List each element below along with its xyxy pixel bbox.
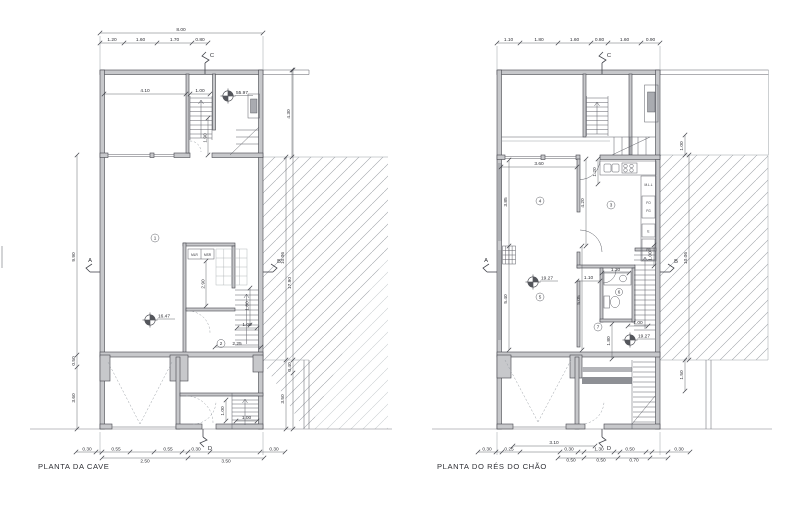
section-letter-d: D [607, 446, 611, 452]
dim-label: 1.30 [611, 267, 621, 273]
ground-floor-plan: 4 3 5 6 7 1.10 1.80 1.60 0.80 1.60 0.90 … [432, 37, 772, 471]
plan-title-cave: PLANTA DA CAVE [38, 462, 109, 471]
dim-label: 3.60 [534, 161, 544, 167]
dim-label: 1.20 [107, 37, 117, 43]
dim-label: 10.06 [683, 252, 689, 264]
level-value: 16.47 [158, 314, 170, 320]
room-number: 3 [610, 203, 613, 208]
cave-plan: 1 2 8.00 1.20 1.60 1.70 0.80 4.10 1.00 5… [30, 27, 392, 471]
section-letter-c: C [607, 53, 611, 59]
dim-label: 3.60 [71, 393, 77, 403]
dim-label: 0.30 [269, 447, 279, 453]
dim-label: 1.00 [633, 320, 643, 326]
chao-room-5: 5 [536, 293, 544, 301]
dim-label: 1.00 [220, 406, 226, 416]
dim-label: 3.50 [280, 394, 286, 404]
room-number: 2 [220, 341, 223, 346]
plan-title-ground-floor: PLANTA DO RÉS DO CHÃO [437, 462, 547, 471]
dim-label: 0.50 [596, 458, 606, 464]
dim-label: 0.50 [625, 447, 635, 453]
cave-level-marker-main [143, 313, 158, 328]
laundry-label: MSR [204, 253, 212, 257]
dim-label: 1.90 [203, 133, 209, 143]
cave-section-markers [86, 52, 277, 447]
dim-label: 0.80 [595, 37, 605, 43]
dim-label: 0.30 [191, 447, 201, 453]
dim-label: 1.60 [570, 37, 580, 43]
cave-level-marker-upper [221, 89, 236, 104]
room-number: 1 [154, 236, 157, 241]
laundry-label: MLR [191, 253, 198, 257]
section-letter-a: A [484, 258, 488, 264]
dim-label: 17.90 [287, 277, 293, 289]
dim-label: 5.05 [576, 295, 582, 305]
dim-label: 1.00 [679, 141, 685, 151]
dim-label: 1.70 [170, 37, 180, 43]
cave-flue [248, 94, 260, 118]
dim-label: 1.80 [245, 301, 251, 311]
section-letter-b: B [674, 259, 678, 265]
level-value: 19.27 [541, 276, 553, 282]
cave-walls [100, 70, 263, 429]
cave-terrain-hatch [263, 70, 388, 429]
dim-label: 0.55 [163, 447, 173, 453]
cave-room-1: 1 [151, 234, 159, 242]
dim-label: 9.90 [71, 252, 77, 262]
dim-label: 0.25 [504, 447, 514, 453]
floor-plan-sheet: 1 2 8.00 1.20 1.60 1.70 0.80 4.10 1.00 5… [0, 0, 800, 505]
dim-label: 4.30 [286, 109, 292, 119]
dim-label: 3.10 [549, 440, 559, 446]
dim-label: 1.20 [592, 167, 598, 177]
chao-mid-stair [634, 255, 656, 330]
kitchen-label-fg: FG [646, 209, 651, 213]
chao-garage [505, 360, 571, 422]
chao-level-marker-main [526, 275, 541, 290]
dim-label: 1.00 [648, 251, 654, 261]
kitchen-label-e: E [647, 230, 649, 234]
dim-label: 2.50 [140, 459, 150, 465]
chao-room-4: 4 [536, 197, 544, 205]
cave-mid-stair [235, 290, 259, 345]
room-number: 4 [539, 199, 542, 204]
chao-level-marker-entry [623, 333, 638, 348]
floor-plans-drawing: 1 2 8.00 1.20 1.60 1.70 0.80 4.10 1.00 5… [0, 0, 800, 505]
room-number: 6 [618, 290, 621, 295]
chao-upper-stair [587, 96, 609, 136]
room-number: 5 [539, 295, 542, 300]
dim-label: 0.50 [566, 458, 576, 464]
dim-label: 0.30 [564, 447, 574, 453]
dim-label: 1.60 [136, 37, 146, 43]
dim-label: 1.60 [620, 37, 630, 43]
section-letter-c: C [210, 53, 214, 59]
cave-garage [108, 362, 172, 424]
dim-label: 0.30 [82, 447, 92, 453]
section-letter-b: B [277, 259, 281, 265]
dim-label: 3.50 [221, 459, 231, 465]
level-value: 19.27 [638, 334, 650, 340]
dim-label: 1.30 [594, 447, 604, 453]
dim-label: 1.00 [242, 415, 252, 421]
dim-label: 0.30 [482, 447, 492, 453]
kitchen-label-fr: FR [646, 248, 651, 252]
dim-label: 3.85 [503, 197, 509, 207]
dim-label: 1.00 [195, 88, 205, 94]
dim-label: 4.20 [580, 198, 586, 208]
chao-walls [497, 70, 660, 429]
dim-label: 1.00 [242, 322, 252, 328]
kitchen-label-fo: FO [646, 201, 651, 205]
dim-label: 1.80 [534, 37, 544, 43]
chao-entry [582, 360, 656, 429]
dim-label: 0.90 [646, 37, 656, 43]
dim-label: 0.40 [287, 362, 293, 372]
section-letter-d: D [208, 446, 212, 452]
chao-terrain-hatch [660, 70, 769, 429]
dim-label: 2.25 [232, 341, 242, 347]
dim-label: 0.30 [674, 447, 684, 453]
room-number: 7 [597, 325, 600, 330]
dim-label: 1.10 [584, 275, 594, 281]
dim-label: 8.00 [176, 27, 186, 33]
section-letter-a: A [88, 258, 92, 264]
cave-upper-stair [190, 96, 212, 152]
dim-label: 2.90 [201, 279, 207, 289]
cave-corner-stair [230, 127, 259, 155]
kitchen-label-mll: M.L.L [645, 183, 653, 187]
dim-label: 5.40 [503, 294, 509, 304]
dim-label: 0.80 [195, 37, 205, 43]
chao-room-6: 6 [615, 288, 622, 295]
chao-room-3: 3 [607, 201, 615, 209]
chao-room-7: 7 [594, 323, 602, 331]
dim-label: 1.80 [606, 336, 612, 346]
dim-label: 0.50 [71, 356, 77, 366]
dim-label: 1.50 [679, 370, 685, 380]
cave-laundry [188, 249, 247, 333]
dim-label: 0.70 [629, 458, 639, 464]
dim-label: 1.10 [504, 37, 514, 43]
cave-room-2: 2 [217, 340, 225, 348]
dim-label: 4.10 [140, 88, 150, 94]
level-value: 55.97 [236, 90, 248, 96]
dim-label: 0.55 [111, 447, 121, 453]
